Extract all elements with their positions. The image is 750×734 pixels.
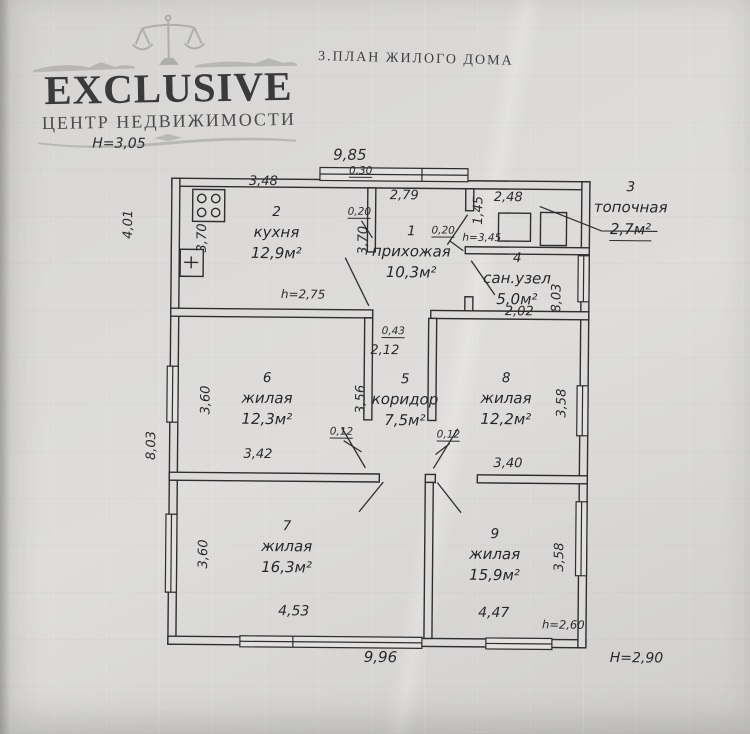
height-room9: h=2,60 bbox=[542, 617, 585, 631]
dim-left-upper: 4,01 bbox=[121, 202, 136, 246]
dim-top-wall: 0,30 bbox=[349, 165, 373, 178]
dim-room9-right: 3,58 bbox=[552, 535, 567, 579]
height-exterior-right: H=2,90 bbox=[610, 650, 664, 666]
dim-wall-hall-san: 0,20 bbox=[431, 224, 455, 237]
floor-plan-photo: EXCLUSIVE ЦЕНТР НЕДВИЖИМОСТИ 3.ПЛАН ЖИЛО… bbox=[0, 0, 750, 734]
dim-room9-bottom: 4,47 bbox=[478, 605, 509, 621]
dim-wall-room6: 0,12 bbox=[330, 426, 354, 439]
dim-boiler-left: 1,45 bbox=[471, 188, 486, 232]
dim-top-total: 9,85 bbox=[333, 146, 367, 164]
dim-room6-left: 3,60 bbox=[198, 378, 213, 422]
room-label-kitchen: 2 кухня 12,9м² bbox=[216, 203, 337, 265]
floor-plan-drawing bbox=[0, 0, 750, 734]
dim-hall-left: 3,70 bbox=[356, 218, 371, 262]
room-label-living6: 6 жилая 12,3м² bbox=[208, 369, 327, 431]
room-label-boiler: 3 топочная 2,7м² bbox=[577, 178, 684, 242]
dim-room7-left: 3,60 bbox=[196, 532, 211, 576]
dim-kitchen-top: 3,48 bbox=[249, 174, 278, 189]
dim-room8-right: 3,58 bbox=[554, 381, 569, 425]
dim-boiler-top: 2,48 bbox=[494, 190, 523, 205]
dim-room6-bottom: 3,42 bbox=[243, 447, 272, 462]
dim-left-lower: 8,03 bbox=[144, 423, 159, 467]
dim-kitchen-left: 3,70 bbox=[195, 216, 210, 260]
dim-wall-room8: 0,12 bbox=[437, 428, 461, 441]
floor-plan: 2 кухня 12,9м² 1 прихожая 10,3м² 3 топоч… bbox=[0, 0, 750, 734]
dim-san-right: 8,03 bbox=[549, 276, 564, 320]
dim-san-bottom: 2,02 bbox=[505, 304, 534, 319]
dim-corridor-top: 2,12 bbox=[370, 343, 399, 358]
room-label-living9: 9 жилая 15,9м² bbox=[434, 524, 555, 586]
room-label-living7: 7 жилая 16,3м² bbox=[224, 517, 349, 579]
boiler-icon bbox=[498, 212, 566, 246]
dim-bottom-total: 9,96 bbox=[364, 648, 398, 666]
dim-room7-bottom: 4,53 bbox=[278, 603, 309, 619]
room-label-living8: 8 жилая 12,2м² bbox=[448, 369, 565, 431]
dim-corridor-left: 3,56 bbox=[353, 377, 368, 421]
height-boiler: h=3,45 bbox=[462, 232, 501, 244]
dim-hall-top: 2,79 bbox=[390, 188, 419, 203]
height-kitchen: h=2,75 bbox=[281, 287, 326, 301]
dim-wall-kitchen-hall: 0,20 bbox=[348, 206, 372, 219]
dim-wall-mid: 0,43 bbox=[382, 325, 406, 338]
dim-room8-bottom: 3,40 bbox=[493, 456, 522, 471]
height-exterior-left: H=3,05 bbox=[92, 135, 146, 151]
